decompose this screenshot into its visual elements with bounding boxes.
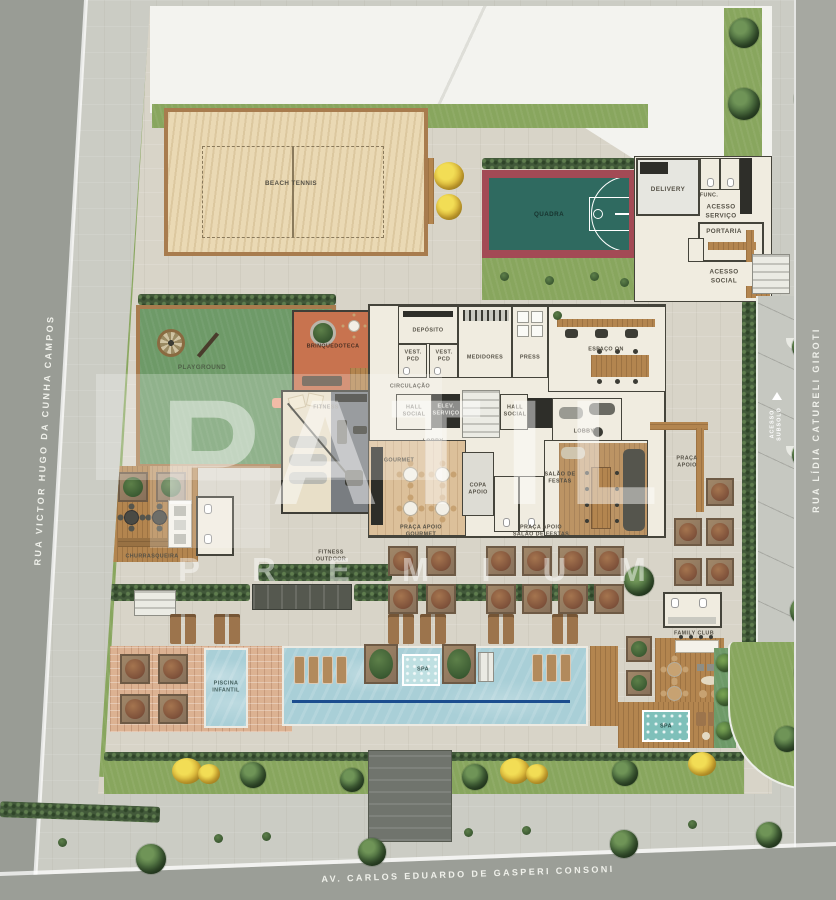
spa-tub-pool	[402, 654, 440, 686]
ramp	[252, 584, 352, 610]
wc-cubicle	[700, 158, 720, 190]
sun-loungers	[552, 614, 578, 644]
planter	[626, 670, 652, 696]
planter	[522, 546, 552, 576]
hedge-above-quadra	[482, 158, 636, 169]
planter	[706, 518, 734, 546]
net-line	[292, 146, 294, 238]
quadra-border	[482, 170, 636, 258]
beach-tennis-court	[164, 108, 428, 256]
tree	[340, 768, 364, 792]
tree	[728, 88, 760, 120]
planter	[158, 654, 188, 684]
tree	[462, 764, 488, 790]
tree	[610, 830, 638, 858]
sun-loungers	[488, 614, 514, 644]
hoop-icon	[593, 209, 603, 219]
yellow-bush	[198, 764, 220, 784]
hedge	[258, 564, 392, 581]
planter	[674, 558, 702, 586]
hoop-support	[615, 213, 629, 215]
steps	[134, 590, 176, 616]
planter	[388, 546, 418, 576]
label-praca-apoio: PRAÇA APOIO	[676, 456, 697, 471]
planter	[558, 584, 588, 614]
sun-loungers	[170, 614, 196, 644]
yellow-bush	[436, 194, 462, 220]
delivery-room	[636, 158, 700, 216]
driveway-subsolo	[756, 296, 796, 650]
site-plan-canvas: BEACH TENNIS QUADRA DELIVERY FUNC. ACES	[0, 0, 836, 900]
hedge-above-playground	[138, 294, 336, 305]
terrace-wood-edge	[696, 428, 704, 512]
lap-lane-line	[292, 700, 570, 703]
driveway-bottom	[368, 750, 452, 842]
wc-cubicle	[688, 238, 704, 262]
wc-cubicle	[720, 158, 740, 190]
hedge	[110, 584, 250, 601]
wc-room	[494, 476, 519, 532]
press-room	[512, 306, 548, 378]
watermark-patch	[96, 374, 442, 480]
table	[124, 510, 139, 525]
planter	[486, 546, 516, 576]
planter	[426, 546, 456, 576]
planter	[706, 478, 734, 506]
arrow-up-icon	[772, 392, 782, 400]
stair-core	[462, 390, 500, 438]
label-fitness-outdoor: FITNESS OUTDOOR	[316, 550, 346, 565]
street-stairs	[752, 254, 790, 294]
planter	[120, 694, 150, 724]
planter-edge	[428, 158, 434, 224]
tree	[240, 762, 266, 788]
planter	[674, 518, 702, 546]
kids-pool	[204, 648, 248, 728]
pool-planter	[442, 644, 476, 684]
service-wall	[740, 158, 752, 214]
main-pool	[282, 646, 588, 726]
yellow-bush	[526, 764, 548, 784]
planter	[706, 558, 734, 586]
carousel-icon	[157, 329, 185, 357]
family-club-wc	[663, 592, 722, 628]
vest-pcd-room	[429, 344, 458, 378]
vest-pcd-room	[398, 344, 427, 378]
planter	[426, 584, 456, 614]
pool-planter	[364, 644, 398, 684]
planter	[558, 546, 588, 576]
espaco-on-room	[548, 306, 666, 392]
planter	[522, 584, 552, 614]
salao-festas-room	[544, 440, 648, 536]
tree	[612, 760, 638, 786]
wc-room	[519, 476, 544, 532]
roof-slab	[150, 6, 772, 114]
planter	[626, 636, 652, 662]
planter	[594, 584, 624, 614]
planter	[486, 584, 516, 614]
street-name-right: RUA LÍDIA CATURELI GIROTI	[811, 327, 821, 513]
spa-tub	[642, 710, 690, 742]
sun-loungers	[388, 614, 414, 644]
copa-apoio-room	[462, 452, 494, 516]
sun-loungers	[214, 614, 240, 644]
planter	[120, 654, 150, 684]
tree	[729, 18, 759, 48]
planter	[594, 546, 624, 576]
tree	[624, 566, 654, 596]
spa-deck	[618, 702, 724, 748]
tree	[136, 844, 166, 874]
quadra-court	[489, 178, 629, 250]
sun-loungers	[420, 614, 446, 644]
tree	[358, 838, 386, 866]
planter	[158, 694, 188, 724]
watermark-patch	[150, 466, 270, 548]
yellow-bush	[434, 162, 464, 190]
yellow-bush	[688, 752, 716, 776]
pool-wood-deck	[590, 646, 618, 726]
planter	[388, 584, 418, 614]
elevator	[528, 398, 552, 428]
hall-social-room-2	[500, 394, 528, 430]
tree	[756, 822, 782, 848]
medidores-room	[458, 306, 512, 378]
deposito-room	[398, 306, 458, 344]
pool-steps	[478, 652, 494, 682]
